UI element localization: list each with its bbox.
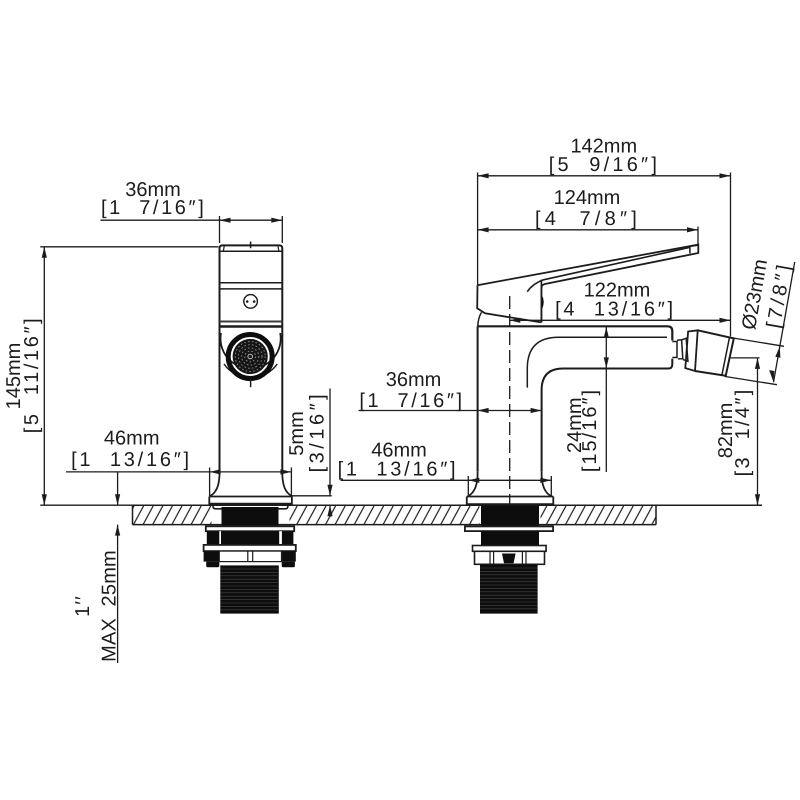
svg-text:[1 7/16″]: [1 7/16″] — [359, 390, 464, 412]
svg-text:[5 11/16″]: [5 11/16″] — [21, 316, 43, 434]
svg-text:36mm: 36mm — [386, 369, 442, 391]
svg-text:[15/16″]: [15/16″] — [579, 388, 601, 472]
svg-text:[1 13/16″]: [1 13/16″] — [338, 459, 459, 481]
svg-text:1′′: 1′′ — [72, 595, 94, 617]
svg-text:[4 13/16″]: [4 13/16″] — [555, 299, 676, 321]
svg-text:[3/16″]: [3/16″] — [307, 391, 329, 473]
svg-text:[3 1/4″]: [3 1/4″] — [732, 387, 754, 476]
svg-text:[1 13/16″]: [1 13/16″] — [71, 449, 192, 471]
svg-text:MAX 25mm: MAX 25mm — [99, 550, 121, 662]
svg-text:[4 7/8″]: [4 7/8″] — [535, 208, 641, 230]
svg-text:5mm: 5mm — [286, 411, 308, 455]
svg-text:[5 9/16″]: [5 9/16″] — [549, 154, 660, 176]
svg-text:[1 7/16″]: [1 7/16″] — [101, 197, 206, 219]
svg-text:46mm: 46mm — [104, 428, 160, 450]
svg-text:124mm: 124mm — [554, 187, 621, 209]
